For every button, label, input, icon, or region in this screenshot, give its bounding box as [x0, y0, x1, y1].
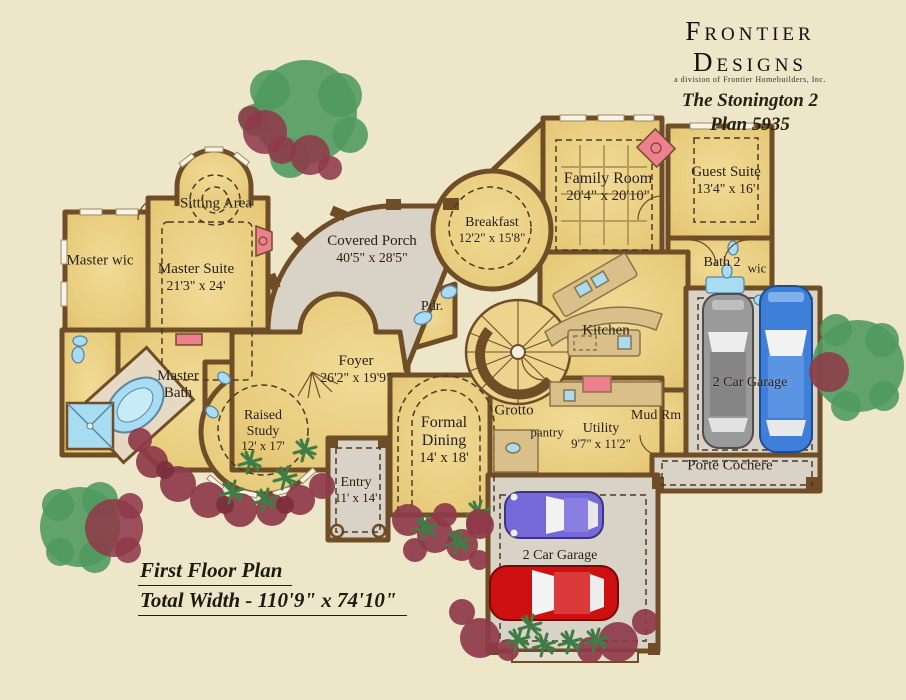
- label-wic: wic: [748, 262, 767, 277]
- label-sitting-area: Sitting Area: [180, 196, 252, 213]
- brand-logo: Frontier Designs: [672, 16, 828, 78]
- car-blue: [760, 286, 812, 452]
- car-purple: [505, 492, 603, 538]
- room-name: Raised Study: [232, 408, 294, 439]
- plan-number: Plan 5935: [672, 114, 828, 136]
- label-family-room: Family Room 20'4" x 20'10": [564, 170, 652, 204]
- room-dims: 26'2" x 19'9": [320, 370, 391, 385]
- brand-subtitle: a division of Frontier Homebuilders, Inc…: [672, 75, 828, 84]
- label-bath-2: Bath 2: [704, 255, 741, 271]
- room-name: Utility: [571, 421, 631, 437]
- room-name: Foyer: [320, 353, 391, 370]
- room-name: Guest Suite: [691, 164, 761, 181]
- car-red: [490, 566, 618, 620]
- label-kitchen: Kitchen: [582, 323, 629, 340]
- room-name: Formal Dining: [408, 414, 480, 450]
- room-dims: 13'4" x 16': [691, 181, 761, 196]
- label-master-suite: Master Suite 21'3" x 24': [158, 261, 234, 293]
- label-grotto: Grotto: [494, 403, 533, 420]
- label-garage-bottom: 2 Car Garage: [523, 548, 598, 564]
- label-formal-dining: Formal Dining 14' x 18': [408, 414, 480, 466]
- footer-total-width: Total Width - 110'9" x 74'10": [138, 588, 407, 616]
- label-breakfast: Breakfast 12'2" x 15'8": [459, 215, 526, 245]
- floor-plan-page: { "title_block": { "brand": "Frontier De…: [0, 0, 906, 700]
- label-master-bath: Master Bath: [146, 368, 210, 402]
- footer-plan-title: First Floor Plan: [138, 558, 292, 586]
- shower: [67, 403, 113, 449]
- tree-right: [809, 314, 904, 421]
- label-master-wic: Master wic: [66, 253, 133, 270]
- room-name: Entry: [335, 475, 378, 491]
- plan-name: The Stonington 2: [672, 90, 828, 112]
- room-dims: 20'4" x 20'10": [564, 188, 652, 204]
- room-dims: 14' x 18': [408, 450, 480, 466]
- label-entry: Entry 11' x 14': [335, 475, 378, 505]
- room-dims: 9'7" x 11'2": [571, 437, 631, 451]
- room-name: Family Room: [564, 170, 652, 188]
- label-porte-cochere: Porte Cochere: [687, 458, 772, 475]
- tree-left: [40, 482, 143, 573]
- room-master-wic: [65, 212, 150, 332]
- label-garage-right: 2 Car Garage: [713, 375, 788, 391]
- room-dims: 12' x 17': [232, 439, 294, 453]
- label-pantry: pantry: [530, 426, 563, 441]
- room-dims: 21'3" x 24': [158, 278, 234, 293]
- room-name: Breakfast: [459, 215, 526, 231]
- label-raised-study: Raised Study 12' x 17': [232, 408, 294, 454]
- room-dims: 12'2" x 15'8": [459, 231, 526, 245]
- label-covered-porch: Covered Porch 40'5" x 28'5": [327, 233, 417, 265]
- room-dims: 11' x 14': [335, 491, 378, 505]
- room-name: Covered Porch: [327, 233, 417, 250]
- tree-top-left: [238, 60, 368, 180]
- room-name: Master Suite: [158, 261, 234, 278]
- label-foyer: Foyer 26'2" x 19'9": [320, 353, 391, 385]
- title-block: Frontier Designs a division of Frontier …: [672, 16, 828, 136]
- label-guest-suite: Guest Suite 13'4" x 16': [691, 164, 761, 196]
- label-powder: Pdr.: [421, 299, 443, 315]
- room-dims: 40'5" x 28'5": [327, 250, 417, 265]
- label-mud-room: Mud Rm: [631, 408, 681, 424]
- car-gray: [703, 294, 753, 448]
- label-utility: Utility 9'7" x 11'2": [571, 421, 631, 451]
